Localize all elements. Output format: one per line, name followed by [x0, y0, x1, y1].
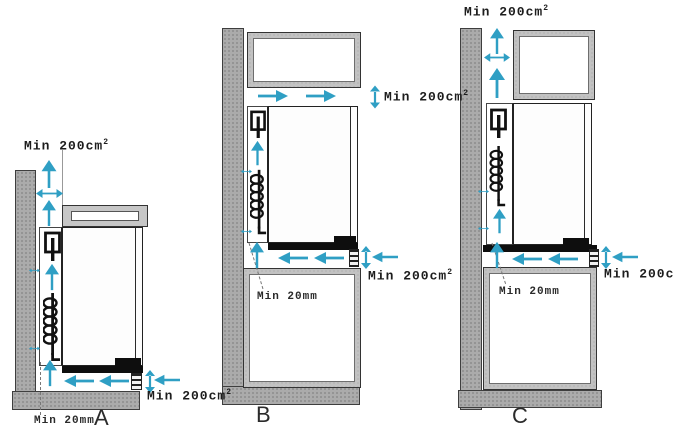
diagram-letter: C: [512, 403, 528, 429]
compressor-unit-icon: [250, 110, 267, 138]
gap-width-double-arrow-icon: [484, 53, 510, 62]
airflow-right-arrow-icon: [258, 90, 288, 102]
airflow-up-arrow-icon: [490, 240, 504, 270]
vent-area-sup: 2: [103, 138, 108, 147]
compressor-unit-icon: [490, 108, 508, 138]
gap-width-double-arrow-icon: [36, 189, 63, 198]
installation-ventilation-diagram: Min 200cm2 Min 200cm2 Min 20mm A: [0, 0, 673, 438]
airflow-up-arrow-icon: [43, 355, 57, 391]
condenser-coil-icon: [43, 293, 62, 363]
vent-area-sup: 2: [226, 388, 231, 397]
airflow-left-arrow-icon: [372, 251, 398, 263]
floor-base: [458, 390, 602, 408]
rear-gap-label: Min 20mm: [34, 415, 95, 427]
vent-area-text: Min 200cm: [368, 268, 447, 283]
diagram-letter: B: [256, 402, 271, 428]
rear-gap-tick-icon: [478, 188, 489, 195]
airflow-up-arrow-icon: [41, 160, 57, 188]
top-vent-area-label: Min 200cm2: [384, 89, 468, 104]
wall: [460, 28, 482, 410]
vent-area-text: Min 200cm: [24, 138, 103, 153]
fridge-door-line: [584, 104, 586, 244]
airflow-left-arrow-icon: [512, 253, 542, 265]
airflow-left-arrow-icon: [612, 251, 638, 263]
airflow-left-arrow-icon: [314, 252, 344, 264]
airflow-left-arrow-icon: [64, 375, 94, 387]
airflow-up-arrow-icon: [489, 28, 505, 54]
plinth-vent-grille: [589, 249, 599, 267]
vent-area-text: Min 200cm: [464, 4, 543, 19]
rear-gap-tick-icon: [29, 267, 40, 274]
airflow-left-arrow-icon: [154, 374, 180, 386]
bottom-vent-area-label: Min 200cm2: [147, 388, 231, 403]
bottom-vent-area-label: Min 200cm2: [604, 266, 673, 281]
rear-gap-tick-icon: [241, 228, 252, 235]
vent-area-sup: 2: [543, 4, 548, 13]
vent-area-sup: 2: [463, 89, 468, 98]
airflow-left-arrow-icon: [548, 253, 578, 265]
vent-area-sup: 2: [447, 268, 452, 277]
condenser-coil-icon: [250, 168, 268, 238]
upper-cabinet-interior: [519, 36, 589, 94]
airflow-right-arrow-icon: [306, 90, 336, 102]
rear-gap-label: Min 20mm: [257, 291, 318, 303]
airflow-up-arrow-icon: [250, 240, 264, 270]
airflow-up-arrow-icon: [489, 66, 505, 100]
airflow-up-arrow-icon: [251, 140, 264, 166]
vent-area-text: Min 200cm: [384, 89, 463, 104]
rear-gap-tick-icon: [241, 168, 252, 175]
bottom-vent-area-label: Min 200cm2: [368, 268, 452, 283]
vent-height-double-arrow-icon: [361, 246, 371, 269]
upper-cabinet: [513, 30, 595, 100]
airflow-up-arrow-icon: [493, 208, 506, 234]
airflow-left-arrow-icon: [278, 252, 308, 264]
diagram-c: Min 200cm2 Min 200cm2 Min 20mm C: [0, 0, 673, 438]
fridge-foot: [563, 238, 589, 245]
rear-gap-label: Min 20mm: [499, 286, 560, 298]
vent-area-text: Min 200cm: [604, 266, 673, 281]
rear-gap-tick-icon: [29, 345, 40, 352]
vent-area-text: Min 200cm: [147, 388, 226, 403]
airflow-up-arrow-icon: [41, 200, 57, 226]
condenser-coil-icon: [489, 146, 508, 208]
top-vent-area-label: Min 200cm2: [464, 4, 548, 19]
leader-line: [40, 362, 41, 415]
top-vent-area-label: Min 200cm2: [24, 138, 108, 153]
airflow-left-arrow-icon: [99, 375, 129, 387]
diagram-letter: A: [94, 405, 109, 431]
compressor-unit-icon: [44, 231, 62, 261]
airflow-up-arrow-icon: [45, 263, 59, 291]
rear-gap-tick-icon: [478, 225, 489, 232]
vent-height-double-arrow-icon: [370, 85, 380, 109]
fridge-body: [513, 103, 592, 245]
